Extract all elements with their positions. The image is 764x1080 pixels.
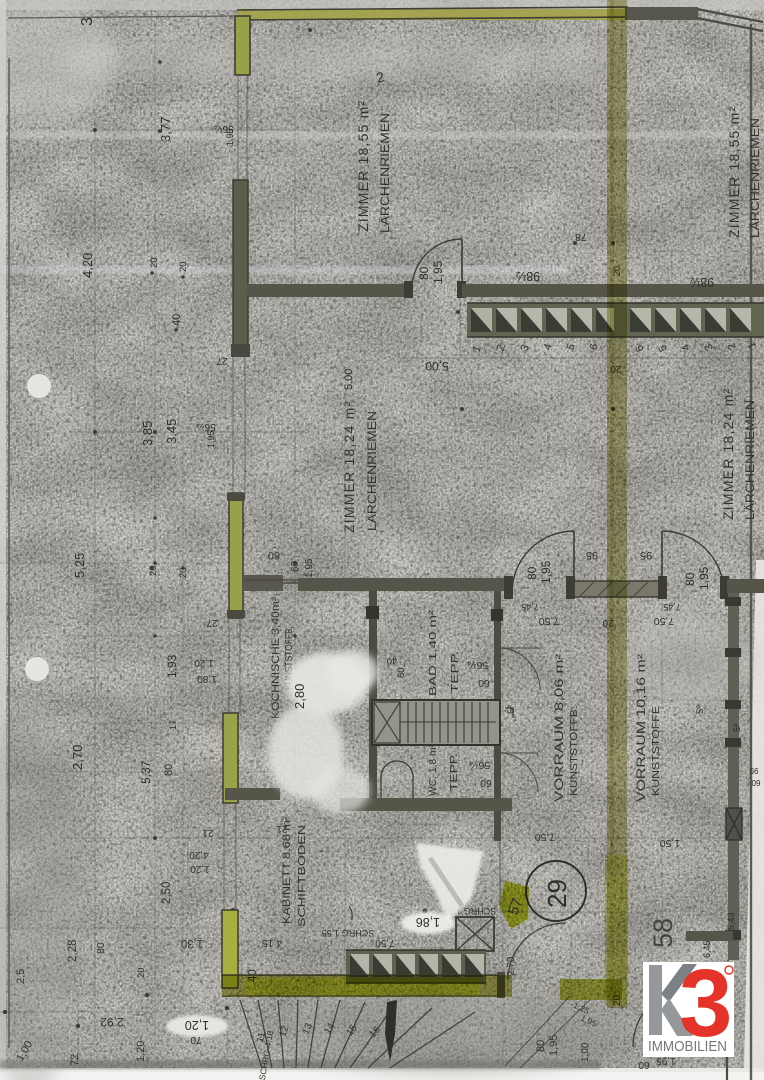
svg-text:1,86: 1,86 [416,915,440,929]
svg-text:29: 29 [542,879,572,908]
svg-text:4,20: 4,20 [80,253,95,278]
svg-text:LÄRCHENRIEMEN: LÄRCHENRIEMEN [380,113,392,233]
svg-text:KUNSTSTOFFE: KUNSTSTOFFE [650,706,662,796]
svg-text:80: 80 [535,1040,547,1052]
svg-text:LÄRCHENRIEMEN: LÄRCHENRIEMEN [750,118,762,238]
svg-text:3,85: 3,85 [140,421,155,446]
svg-text:7,45: 7,45 [521,602,539,612]
svg-text:5,00: 5,00 [425,359,449,373]
svg-text:7,45: 7,45 [663,602,681,612]
svg-text:1,95: 1,95 [304,558,315,578]
svg-text:98½: 98½ [515,269,540,283]
svg-text:80: 80 [163,764,175,776]
svg-text:BAD 1,40 m²: BAD 1,40 m² [427,609,439,696]
svg-text:60: 60 [396,667,407,678]
svg-text:98½: 98½ [689,275,714,289]
svg-text:20: 20 [178,261,189,272]
svg-text:IMMOBILIEN: IMMOBILIEN [648,1039,727,1055]
svg-text:1,20: 1,20 [190,863,210,874]
svg-text:70: 70 [190,1034,202,1045]
svg-text:72: 72 [69,1054,81,1066]
svg-text:TEPP.: TEPP. [450,651,461,693]
svg-text:1,20: 1,20 [135,1041,147,1062]
svg-text:60: 60 [480,777,492,789]
svg-text:ZIMMER 18,24 m²: ZIMMER 18,24 m² [341,401,357,533]
svg-text:95: 95 [586,549,598,561]
svg-text:3,77: 3,77 [158,117,173,142]
svg-text:2,50: 2,50 [161,882,173,904]
svg-text:60: 60 [751,778,760,787]
svg-text:56¼: 56¼ [470,759,491,771]
svg-text:3: 3 [79,17,96,26]
svg-text:WC. 1,8 m²: WC. 1,8 m² [427,744,439,796]
svg-text:60: 60 [290,560,301,572]
svg-text:60: 60 [478,677,490,689]
svg-text:SCHIFTBODEN: SCHIFTBODEN [296,825,308,927]
svg-text:27: 27 [216,355,228,366]
svg-text:1,30: 1,30 [181,937,203,949]
svg-text:20: 20 [148,565,159,576]
svg-text:ZIMMER 18,55 m²: ZIMMER 18,55 m² [726,106,742,238]
svg-text:80: 80 [268,549,280,561]
svg-text:TEPP.: TEPP. [449,753,460,791]
svg-text:2,5: 2,5 [15,969,27,984]
svg-text:1,20: 1,20 [185,1018,209,1032]
svg-text:21: 21 [276,823,288,834]
svg-text:80: 80 [417,266,431,280]
svg-text:1,95: 1,95 [539,560,553,584]
svg-text:40: 40 [387,655,398,666]
svg-text:1,95: 1,95 [431,260,445,284]
svg-text:1,95: 1,95 [206,430,216,448]
svg-text:20: 20 [178,567,189,578]
svg-text:1,50: 1,50 [660,837,681,849]
svg-text:7,50: 7,50 [654,615,675,627]
svg-text:5,37: 5,37 [139,760,153,784]
svg-text:2,92: 2,92 [100,1015,124,1029]
svg-text:1,95: 1,95 [697,566,711,590]
svg-text:5º: 5º [695,705,706,714]
svg-text:4,15: 4,15 [262,937,283,949]
svg-text:VORRAUM 10,16 m²: VORRAUM 10,16 m² [636,654,648,802]
svg-text:7,50: 7,50 [535,831,556,843]
svg-text:VORRAUM 8,06 m²: VORRAUM 8,06 m² [554,654,566,802]
svg-text:20: 20 [149,257,160,268]
svg-text:ZIMMER 18,24 m²: ZIMMER 18,24 m² [720,388,736,520]
svg-text:7,50: 7,50 [375,937,395,948]
svg-text:5,25: 5,25 [72,553,87,578]
svg-text:95: 95 [749,766,758,775]
svg-text:60: 60 [638,1059,650,1070]
svg-text:27: 27 [206,617,218,628]
svg-text:5,43: 5,43 [726,912,736,930]
svg-text:80: 80 [525,566,539,580]
svg-text:80: 80 [95,942,107,954]
svg-text:2,28: 2,28 [67,940,79,962]
svg-text:KOCHNISCHE 3,40m²: KOCHNISCHE 3,40m² [270,597,282,719]
svg-text:78: 78 [575,231,587,243]
svg-text:21: 21 [202,827,214,838]
svg-text:LÄRCHENRIEMEN: LÄRCHENRIEMEN [745,400,757,520]
svg-text:2,70: 2,70 [70,745,85,770]
svg-text:LÄRCHENRIEMEN: LÄRCHENRIEMEN [367,411,379,531]
svg-text:2,80: 2,80 [292,684,307,709]
svg-text:1,95: 1,95 [548,1035,560,1056]
svg-text:95: 95 [640,549,652,561]
svg-text:5ª: 5ª [732,723,742,732]
svg-text:KUNSTSTOFFB.: KUNSTSTOFFB. [568,706,580,796]
svg-text:40: 40 [171,314,183,326]
svg-text:80: 80 [683,572,697,586]
svg-text:1,80: 1,80 [197,673,217,684]
svg-text:5,00: 5,00 [343,369,355,390]
svg-text:5º: 5º [506,705,517,714]
svg-text:SCHRG 1,55: SCHRG 1,55 [322,928,375,938]
svg-text:56¼: 56¼ [468,659,489,671]
svg-text:1,93: 1,93 [165,654,179,678]
svg-text:20: 20 [136,967,147,978]
svg-text:1,95: 1,95 [225,128,235,146]
svg-text:7,50: 7,50 [539,615,560,627]
svg-text:1,20: 1,20 [194,657,214,668]
svg-text:1,00: 1,00 [580,1042,591,1062]
svg-text:17: 17 [168,720,178,730]
svg-text:ZIMMER 18,55 m²: ZIMMER 18,55 m² [355,100,371,232]
svg-text:4,20: 4,20 [189,849,209,860]
svg-text:58: 58 [648,918,678,948]
svg-text:3,45: 3,45 [164,419,179,444]
